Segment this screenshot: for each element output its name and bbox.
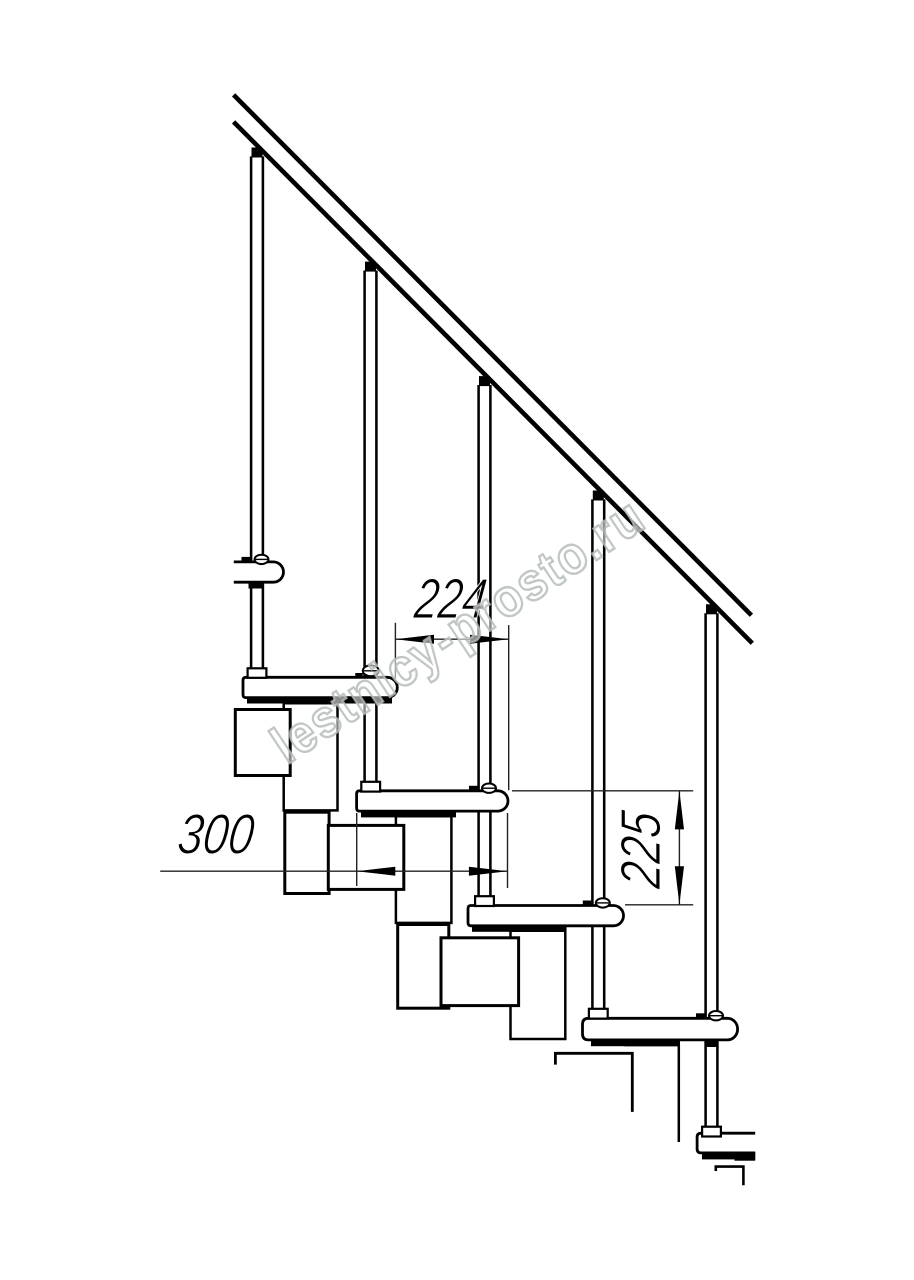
svg-text:300: 300 [174,804,258,867]
svg-text:225: 225 [610,808,673,892]
